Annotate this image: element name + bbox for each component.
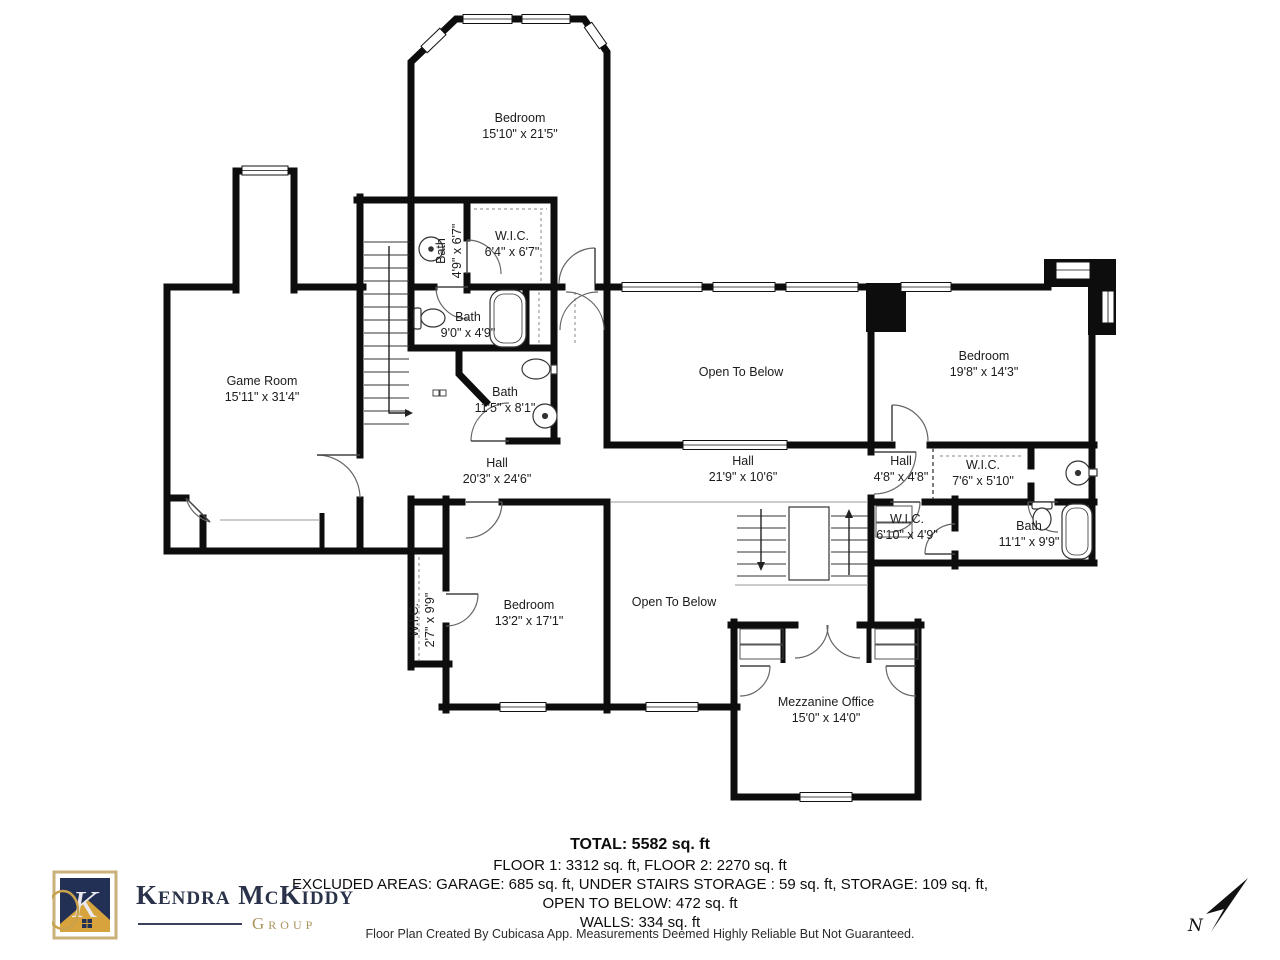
room-label: Mezzanine Office 15'0" x 14'0" [778, 694, 874, 727]
room-label: W.I.C. 6'10" x 4'9" [876, 511, 938, 544]
window-mullions [242, 19, 1108, 797]
room-label: Hall 21'9" x 10'6" [709, 453, 778, 486]
room-label: Bath 11'1" x 9'9" [999, 518, 1060, 551]
brand-name: Kendra McKiddy [136, 882, 354, 909]
north-arrow-icon [1186, 868, 1266, 948]
room-label: Open To Below [699, 364, 784, 380]
toilet-icon [414, 308, 421, 329]
brand-rule [138, 923, 242, 925]
compass-north-label: N [1188, 916, 1203, 936]
floor-plan-page: Bedroom 15'10" x 21'5" Bath 4'9" x 6'7" … [0, 0, 1280, 960]
closet-rails [419, 209, 1022, 660]
room-label: Bath 11'5" x 8'1" [475, 384, 536, 417]
room-label: Open To Below [632, 594, 717, 610]
compass: N [1186, 868, 1266, 948]
sink-icon [522, 359, 550, 379]
room-label: Bath 9'0" x 4'9" [441, 309, 496, 342]
room-label: Hall 4'8" x 4'8" [874, 453, 929, 486]
brand-logo-icon: K [52, 870, 122, 944]
brand-group-label: Group [252, 915, 316, 932]
stair-arrow-up [845, 509, 853, 518]
stair-arrow-upper [405, 409, 413, 417]
room-label: Bedroom 13'2" x 17'1" [495, 597, 564, 630]
room-label: Hall 20'3" x 24'6" [463, 455, 532, 488]
room-label: Bedroom 15'10" x 21'5" [482, 110, 558, 143]
total-area: TOTAL: 5582 sq. ft [0, 836, 1280, 854]
walls [167, 19, 1094, 797]
room-label: Bath 4'9" x 6'7" [433, 224, 466, 279]
stair-arrow-down [757, 562, 765, 571]
closet-walls [322, 513, 869, 663]
staircase-upper [364, 242, 409, 424]
shelves [220, 506, 918, 659]
room-label: W.I.C. 7'6" x 5'10" [952, 457, 1014, 490]
floor-plan-drawing [0, 0, 1280, 960]
room-label: Bedroom 19'8" x 14'3" [950, 348, 1019, 381]
room-label: Game Room 15'11" x 31'4" [225, 373, 300, 406]
room-label: W.I.C. 6'4" x 6'7" [485, 228, 540, 261]
room-label: W.I.C. 2'7" x 9'9" [406, 593, 439, 648]
brand-logo: K Kendra McKiddy Group [52, 870, 354, 944]
windows [242, 15, 1114, 802]
